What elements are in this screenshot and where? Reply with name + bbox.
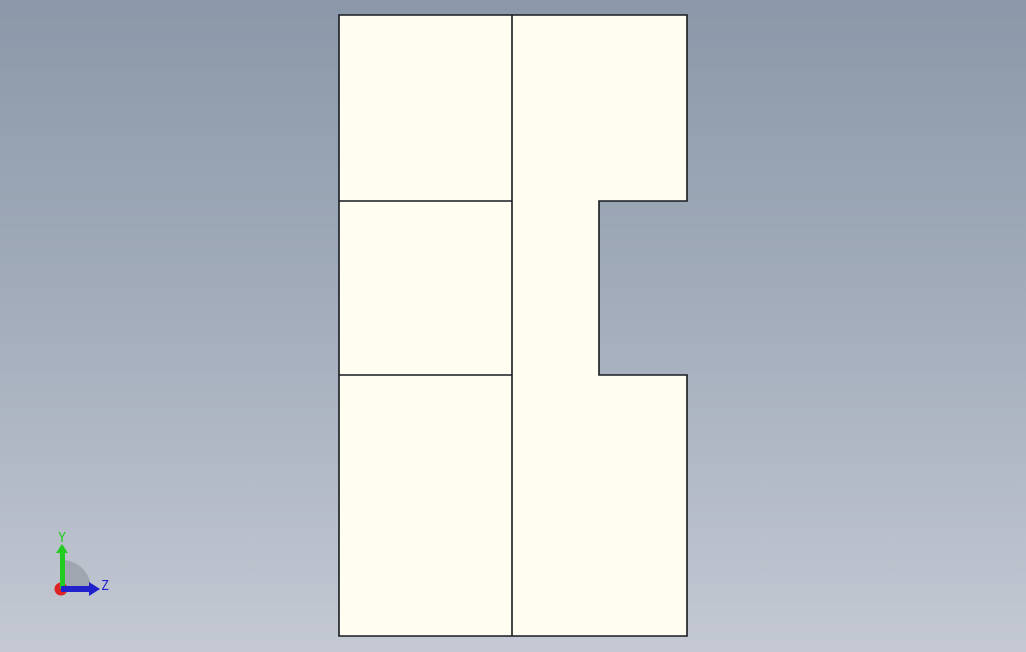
z-axis-shaft: [61, 586, 90, 592]
z-axis-label: Z: [101, 579, 109, 594]
y-axis-shaft: [60, 551, 65, 589]
y-axis-label: Y: [58, 531, 66, 546]
viewport-canvas[interactable]: Y Z: [0, 0, 1026, 652]
cad-viewport[interactable]: Y Z: [0, 0, 1026, 652]
